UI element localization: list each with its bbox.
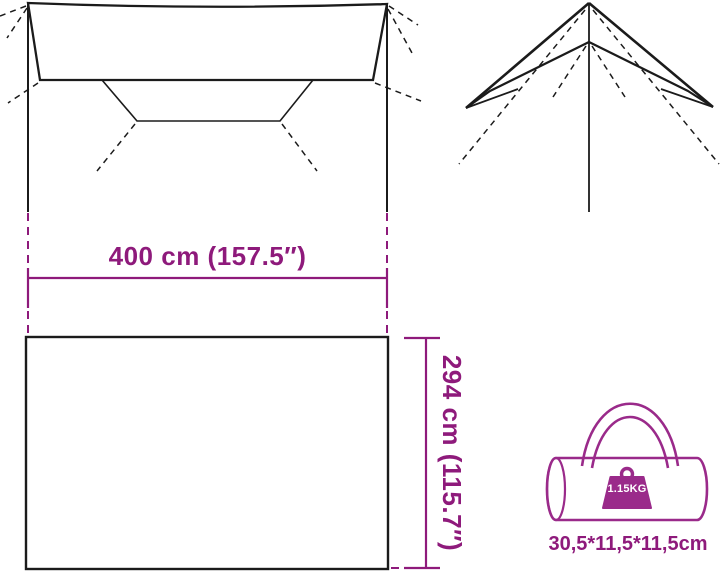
bag-handle-inner xyxy=(592,417,668,468)
bag-handle-outer xyxy=(582,404,678,466)
tarp-side-edge-lines xyxy=(28,3,387,212)
bag-end-cap xyxy=(547,458,565,520)
guy-line-dashes-top-view xyxy=(0,6,421,171)
weight-value-label: 1.15KG xyxy=(597,483,657,495)
width-end-ticks xyxy=(28,268,387,308)
depth-dimension-label: 294 cm (115.7″) xyxy=(435,338,469,568)
package-size-label: 30,5*11,5*11,5cm xyxy=(538,533,718,556)
product-dimension-diagram: 400 cm (157.5″) 294 cm (115.7″) 1.15KG 3… xyxy=(0,0,720,575)
tarp-canopy-outline xyxy=(28,3,387,80)
width-dimension-label: 400 cm (157.5″) xyxy=(28,241,387,272)
tarp-inner-panel-lines xyxy=(102,80,313,121)
tarp-front-view xyxy=(459,3,719,212)
carry-bag-icon xyxy=(547,404,707,520)
footprint-rectangle xyxy=(26,337,388,569)
ground-footprint xyxy=(26,337,388,569)
depth-dimension-line xyxy=(391,338,440,568)
width-dimension-line xyxy=(28,213,387,336)
tarp-top-view xyxy=(0,3,421,212)
width-extension-dashes xyxy=(28,213,387,336)
